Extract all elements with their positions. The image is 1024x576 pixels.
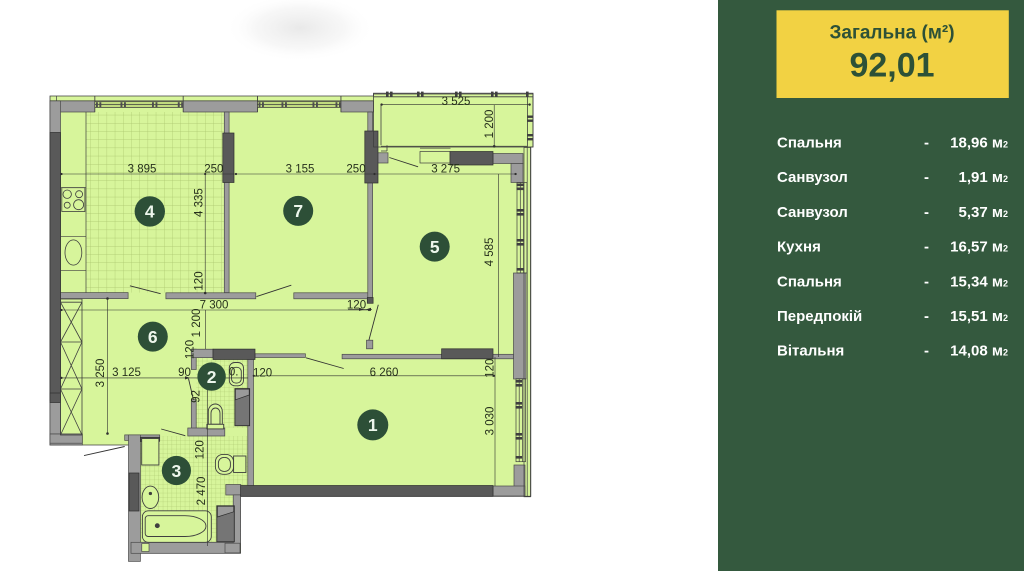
svg-text:4 585: 4 585 — [484, 238, 496, 267]
svg-text:-: - — [924, 239, 929, 256]
svg-text:18,96 м2: 18,96 м2 — [950, 135, 1008, 152]
svg-text:3 275: 3 275 — [431, 163, 460, 175]
svg-text:1 200: 1 200 — [191, 309, 203, 338]
svg-text:6: 6 — [148, 327, 158, 347]
svg-text:-: - — [924, 135, 929, 152]
svg-text:Кухня: Кухня — [777, 239, 821, 256]
svg-text:3: 3 — [172, 461, 182, 481]
svg-text:120: 120 — [194, 440, 206, 459]
svg-text:Загальна (м²): Загальна (м²) — [829, 23, 954, 44]
svg-text:3 895: 3 895 — [128, 163, 157, 175]
svg-text:Передпокій: Передпокій — [777, 308, 862, 325]
svg-text:92: 92 — [190, 390, 202, 403]
svg-text:3 125: 3 125 — [112, 367, 141, 379]
svg-text:90: 90 — [178, 367, 191, 379]
svg-text:Санвузол: Санвузол — [777, 169, 848, 186]
svg-text:5: 5 — [430, 237, 440, 257]
svg-text:120: 120 — [347, 299, 366, 311]
svg-text:-: - — [924, 204, 929, 221]
svg-text:16,57 м2: 16,57 м2 — [950, 239, 1008, 256]
svg-text:7 300: 7 300 — [200, 299, 229, 311]
svg-text:-: - — [924, 343, 929, 360]
svg-text:250: 250 — [346, 163, 365, 175]
svg-text:120: 120 — [184, 340, 196, 359]
svg-text:92,01: 92,01 — [849, 47, 934, 85]
svg-text:3 030: 3 030 — [485, 407, 497, 436]
svg-text:0.: 0. — [229, 366, 239, 378]
svg-text:15,34 м2: 15,34 м2 — [950, 273, 1008, 290]
svg-text:1: 1 — [368, 415, 378, 435]
svg-text:15,51 м2: 15,51 м2 — [950, 308, 1008, 325]
svg-text:1 200: 1 200 — [484, 110, 496, 139]
svg-text:1,91 м2: 1,91 м2 — [959, 169, 1008, 186]
svg-text:Спальня: Спальня — [777, 135, 842, 152]
svg-text:4 335: 4 335 — [194, 188, 206, 217]
svg-text:3 250: 3 250 — [95, 359, 107, 388]
svg-text:250: 250 — [204, 163, 223, 175]
svg-text:5,37 м2: 5,37 м2 — [959, 204, 1008, 221]
svg-text:3 525: 3 525 — [442, 96, 471, 108]
svg-text:7: 7 — [293, 201, 303, 221]
svg-text:-: - — [924, 273, 929, 290]
svg-text:Вітальня: Вітальня — [777, 343, 844, 360]
svg-text:-: - — [924, 308, 929, 325]
svg-text:6 260: 6 260 — [370, 367, 399, 379]
svg-text:Санвузол: Санвузол — [777, 204, 848, 221]
svg-text:2: 2 — [207, 367, 217, 387]
svg-text:-: - — [924, 169, 929, 186]
svg-text:120: 120 — [485, 359, 497, 378]
svg-text:14,08 м2: 14,08 м2 — [950, 343, 1008, 360]
svg-text:120: 120 — [194, 271, 206, 290]
svg-text:2 470: 2 470 — [196, 477, 208, 506]
svg-text:120: 120 — [253, 367, 272, 379]
svg-text:4: 4 — [145, 202, 155, 222]
svg-text:Спальня: Спальня — [777, 273, 842, 290]
svg-text:3 155: 3 155 — [286, 163, 315, 175]
